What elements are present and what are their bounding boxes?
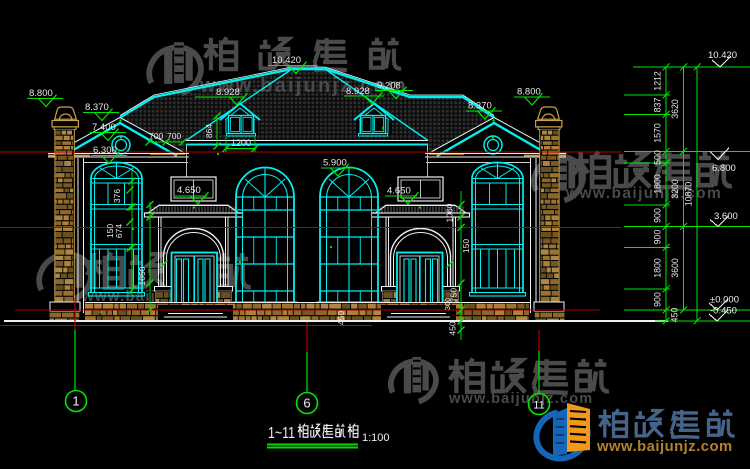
svg-text:450: 450 [670,308,680,323]
svg-text:9.208: 9.208 [377,81,401,92]
svg-text:1200: 1200 [231,138,251,148]
svg-text:8.928: 8.928 [346,86,370,97]
svg-text:1:100: 1:100 [362,432,390,444]
svg-text:6: 6 [303,396,310,411]
svg-text:1060: 1060 [445,203,455,222]
svg-text:3200: 3200 [670,179,680,199]
svg-text:1212: 1212 [653,71,663,91]
svg-text:150: 150 [461,239,471,253]
svg-text:4.650: 4.650 [177,185,201,196]
svg-text:6.300: 6.300 [93,145,117,156]
svg-text:1: 1 [72,394,79,409]
svg-text:500: 500 [653,150,663,165]
svg-text:3.600: 3.600 [714,211,738,222]
svg-text:1~11: 1~11 [268,425,295,442]
svg-text:10.420: 10.420 [708,50,737,61]
svg-text:300: 300 [443,298,452,311]
svg-text:10870: 10870 [684,182,694,207]
svg-text:3600: 3600 [670,258,680,278]
svg-text:5.900: 5.900 [323,158,347,169]
svg-text:www.baijunjz.com: www.baijunjz.com [565,185,722,202]
svg-text:1570: 1570 [653,123,663,143]
svg-text:1800: 1800 [653,258,663,278]
svg-text:8.370: 8.370 [468,101,492,112]
svg-text:8.800: 8.800 [517,87,541,98]
svg-text:3620: 3620 [670,99,680,119]
svg-text:900: 900 [653,292,663,307]
svg-text:7.400: 7.400 [92,122,116,133]
svg-text:900: 900 [653,208,663,223]
svg-text:864: 864 [204,124,214,138]
svg-text:450: 450 [336,311,346,325]
svg-text:900: 900 [653,230,663,245]
svg-text:8.370: 8.370 [85,102,109,113]
svg-text:376: 376 [112,189,122,203]
svg-text:8.800: 8.800 [29,88,53,99]
svg-text:674: 674 [114,224,124,238]
svg-text:11: 11 [533,400,544,412]
svg-text:4.650: 4.650 [387,186,411,197]
svg-text:±0.000: ±0.000 [710,295,739,306]
svg-text:1800: 1800 [653,174,663,194]
svg-text:6.800: 6.800 [712,163,736,174]
svg-text:1050: 1050 [137,266,147,285]
svg-text:837: 837 [653,98,663,113]
svg-text:10.420: 10.420 [272,55,301,66]
svg-text:www.baijunjz.com: www.baijunjz.com [596,439,733,455]
svg-text:450: 450 [448,321,458,335]
svg-text:8.928: 8.928 [216,87,240,98]
